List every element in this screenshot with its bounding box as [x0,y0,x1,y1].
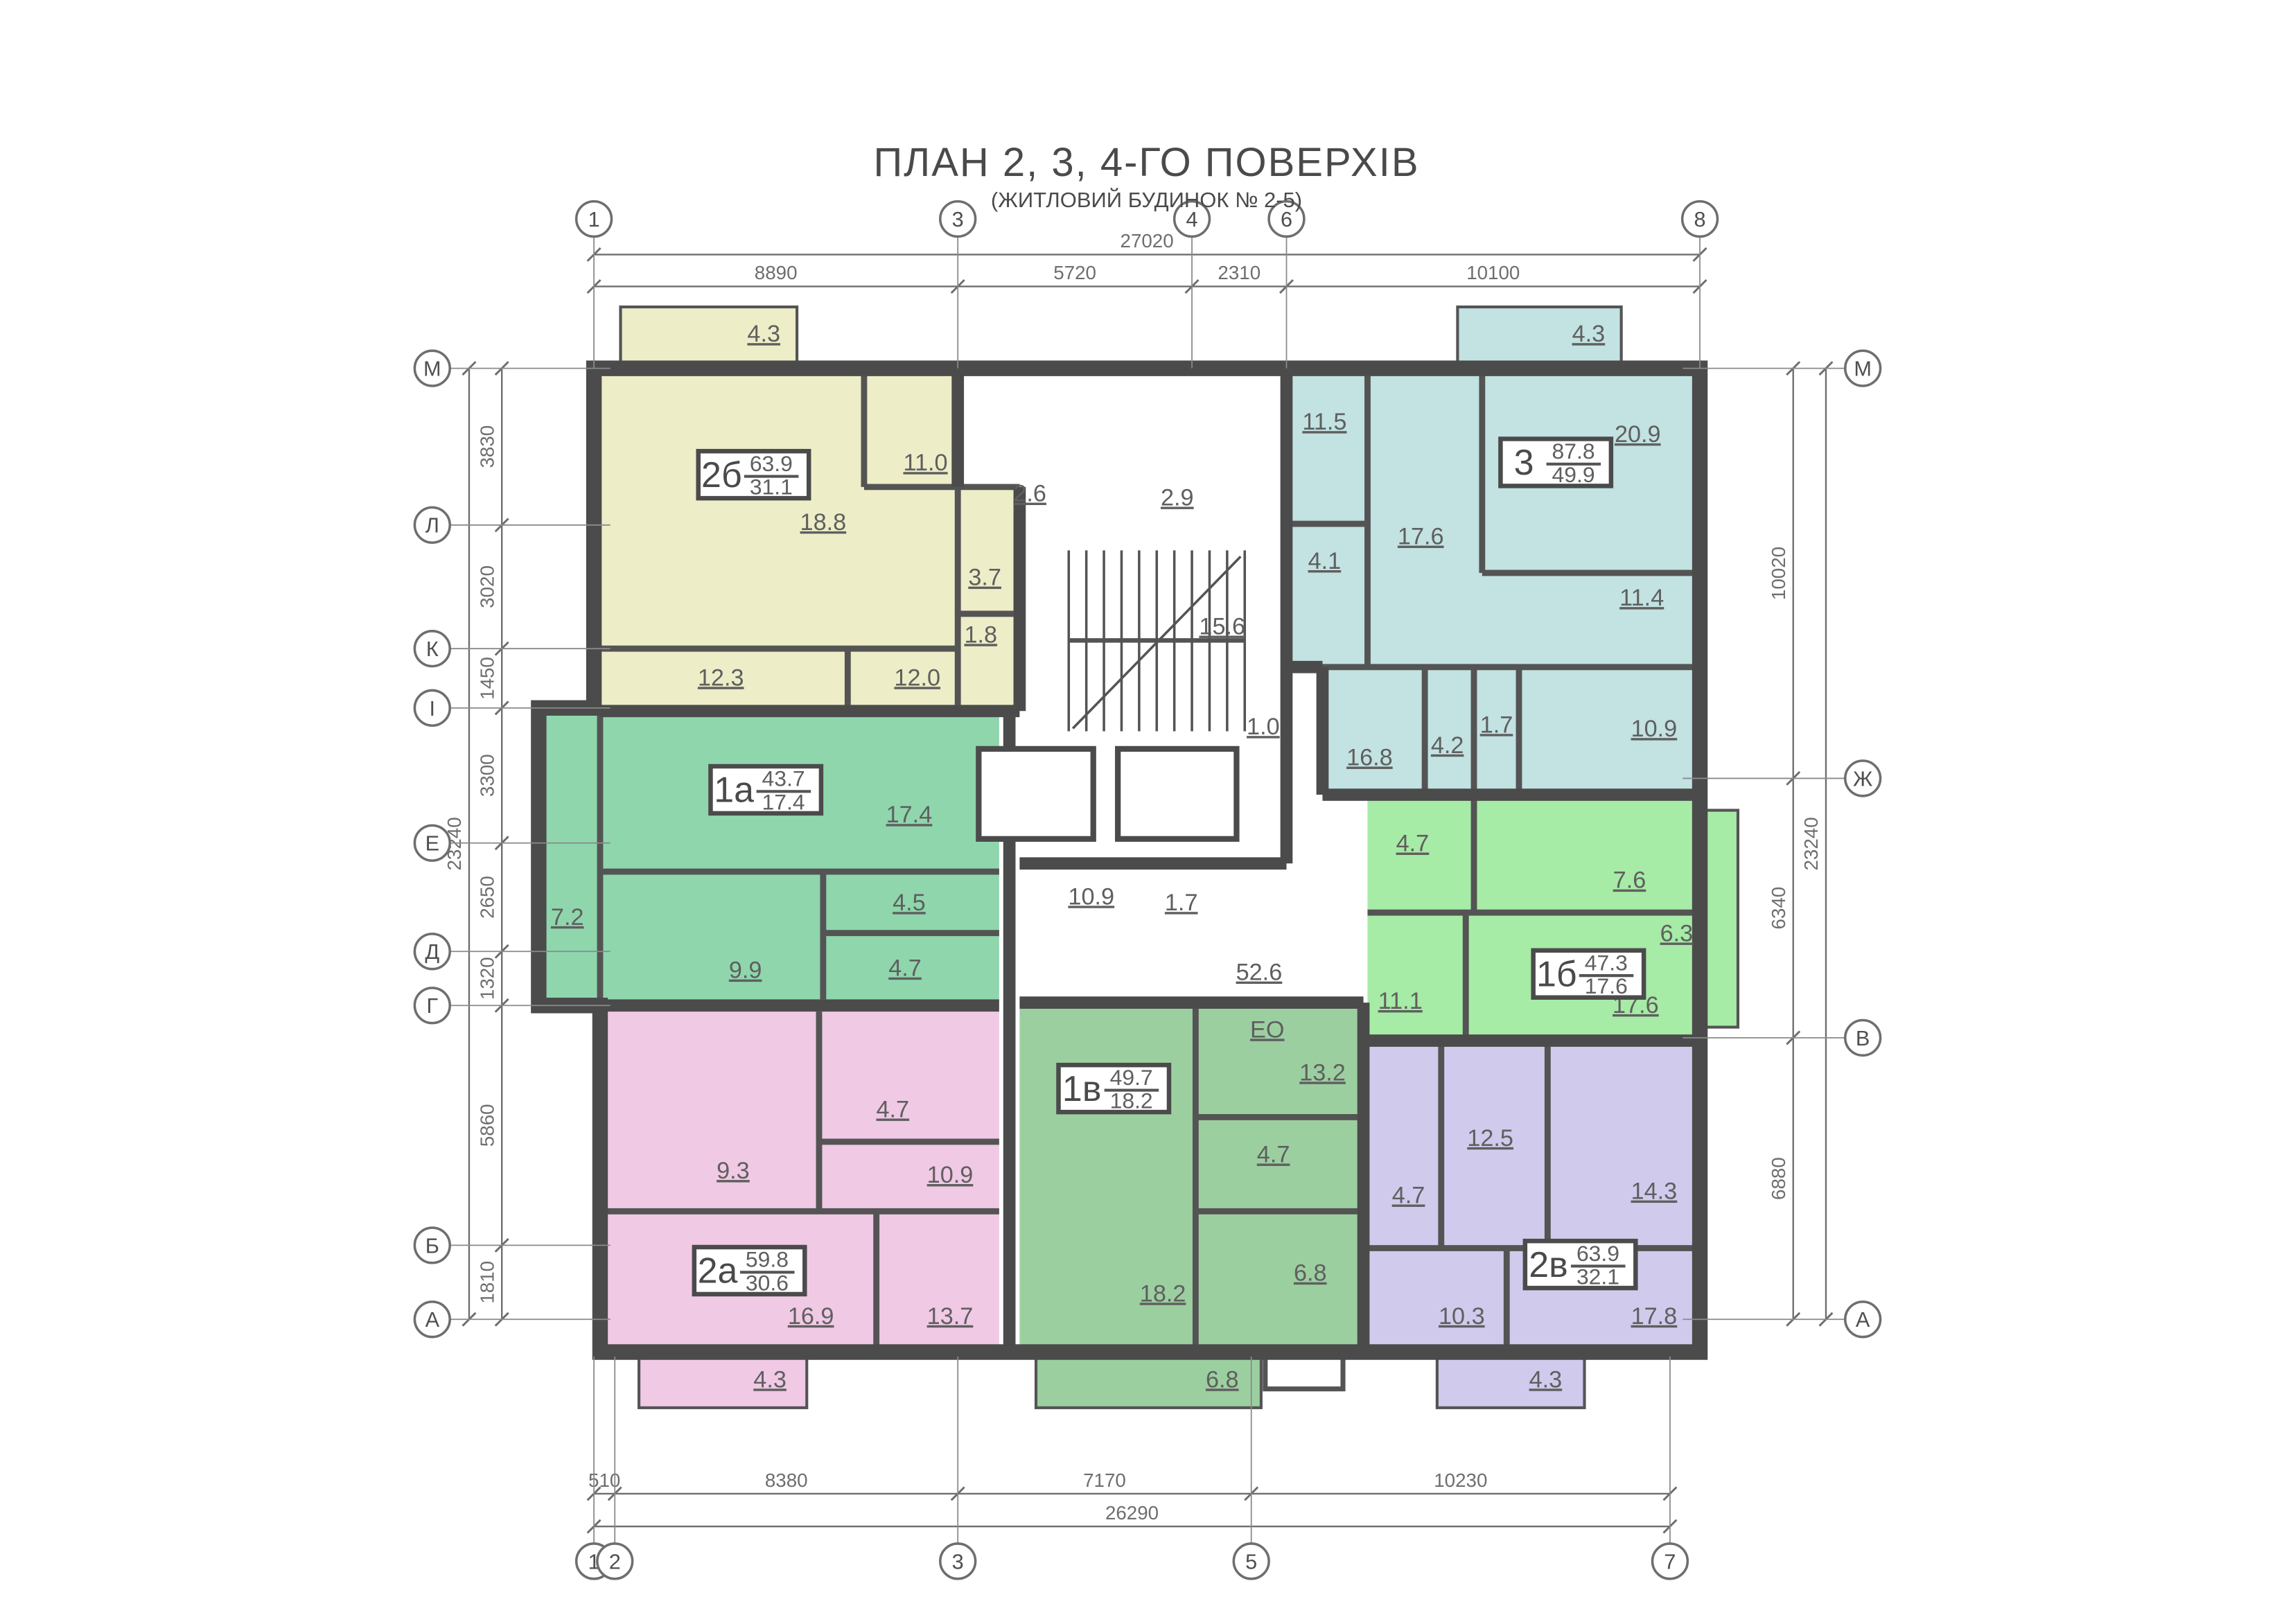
apartment-id-label: 1в [1062,1069,1102,1109]
balcony-area-label: 4.3 [1529,1366,1563,1393]
room-area-label: ЕО [1250,1016,1285,1043]
room-area-label: 17.6 [1398,524,1444,550]
apartment-id-label: 2а [698,1251,738,1291]
room-area-label: 13.7 [927,1303,974,1330]
room-area-label: 20.9 [1615,421,1661,448]
apartment-total-area: 87.8 [1552,439,1595,464]
apartment-living-area: 49.9 [1552,462,1595,487]
balcony-area-label: 4.3 [747,321,780,347]
elevator-shaft [978,749,1093,839]
dim-chain-value: 3300 [476,754,498,797]
apartment-id-label: 1а [714,770,754,811]
room-area-label: 13.2 [1299,1059,1346,1086]
common-area-label: 10.9 [1068,883,1114,910]
apartment-id-label: 3 [1514,443,1534,483]
apartment-living-area: 30.6 [746,1270,789,1295]
apartment-total-area: 59.8 [746,1247,789,1272]
room-area-label: 7.2 [551,904,584,930]
info-box-2v: 2в63.932.1 [1525,1241,1635,1289]
room-area-label: 1.7 [1480,712,1513,738]
room-area-label: 12.0 [894,664,940,691]
room-area-label: 11.4 [1619,585,1664,611]
apartment-id-label: 2б [701,455,742,495]
apartment-living-area: 31.1 [750,475,793,500]
room-area-label: 4.7 [876,1096,909,1122]
room-area-label: 16.9 [788,1303,834,1330]
balcony-area-label: 6.8 [1206,1366,1239,1393]
axis-bubble-label: 7 [1664,1549,1676,1573]
common-area-label: 1.0 [1247,714,1280,740]
balcony-area-label: 4.3 [753,1366,787,1393]
room-area-label: 9.9 [729,957,762,984]
room-area-label: 11.5 [1302,409,1346,435]
room-area-label: 1.8 [964,621,997,648]
common-area-label: 15.6 [1199,614,1245,640]
axis-bubble-label: І [430,696,436,721]
elevator-shaft [1118,749,1236,839]
room-area-label: 4.7 [888,955,922,982]
dim-chain-value: 2310 [1218,262,1260,283]
common-area-label: 52.6 [1236,960,1283,986]
dim-chain-value: 10100 [1466,262,1520,283]
page-subtitle: (ЖИТЛОВИЙ БУДИНОК № 2-5) [991,188,1302,213]
info-box-2a: 2а59.830.6 [694,1247,805,1296]
common-area-label: 1.7 [1165,890,1198,916]
dim-chain-value: 5720 [1053,262,1096,283]
axis-bubble-label: А [425,1307,440,1332]
axis-bubble-label: Е [425,831,439,856]
room-area-label: 10.9 [1631,716,1678,742]
apartment-living-area: 32.1 [1576,1264,1619,1289]
apartment-total-area: 63.9 [1576,1241,1619,1266]
axis-bubble-label: А [1856,1307,1870,1332]
apartment-total-area: 47.3 [1585,950,1628,975]
apartment-living-area: 17.4 [762,789,805,814]
info-box-2b: 2б63.931.1 [699,451,809,500]
axis-bubble-label: Б [425,1233,439,1257]
axis-bubble-label: 1 [588,207,600,231]
room-area-label: 4.1 [1308,548,1342,574]
info-box-1a: 1а43.717.4 [710,766,820,815]
apartment-living-area: 17.6 [1585,973,1628,998]
dim-chain-value: 2650 [476,876,498,919]
room-area-label: 6.3 [1660,921,1694,947]
dim-overall-value: 26290 [1105,1502,1159,1524]
room-area-label: 18.2 [1140,1280,1186,1307]
dim-chain-value: 6340 [1768,887,1789,930]
common-labels: 2.62.915.61.010.91.752.6 [1013,481,1282,986]
room-area-label: 16.8 [1346,745,1393,771]
dim-chain-value: 3830 [476,425,498,468]
axis-bubble-label: Ж [1853,766,1872,791]
room-area-label: 3.7 [968,565,1001,591]
apartment-region [538,714,999,1000]
axis-bubble-label: Л [425,513,439,538]
info-box-1v: 1в49.718.2 [1059,1065,1169,1113]
axis-bubble-label: М [423,357,441,381]
axis-bubble-label: 3 [952,207,964,231]
common-area-label: 2.6 [1013,481,1046,507]
apartment-region [1019,1003,1359,1352]
apartment-id-label: 2в [1529,1245,1568,1285]
room-area-label: 4.7 [1392,1183,1425,1209]
dim-chain-value: 10020 [1768,547,1789,600]
axis-bubble-label: 3 [952,1549,964,1573]
common-area-label: 2.9 [1161,484,1194,511]
info-box-3: 387.849.9 [1500,439,1610,487]
axis-bubble-label: В [1856,1026,1870,1050]
dim-chain-value: 1810 [476,1261,498,1304]
balcony-region [1437,1352,1585,1408]
dim-chain-value: 3020 [476,565,498,608]
apartment-living-area: 18.2 [1110,1088,1153,1113]
axis-bubble-label: 2 [609,1549,621,1573]
floor-plan-canvas: 18.811.03.71.812.312.04.311.54.117.620.9… [0,0,2293,1621]
dim-chain-value: 1450 [476,657,498,700]
dim-chain-value: 7170 [1083,1469,1126,1491]
apartment-id-label: 1б [1536,954,1577,994]
axis-bubble-label: 5 [1245,1549,1257,1573]
axis-bubble-label: Г [426,994,438,1018]
axis-bubble-label: К [426,637,439,661]
room-area-label: 17.4 [886,802,933,828]
room-area-label: 12.5 [1467,1125,1513,1151]
axis-bubble-label: 8 [1694,207,1706,231]
room-area-label: 17.8 [1631,1303,1678,1330]
room-area-label: 10.9 [927,1162,974,1188]
apartment-total-area: 63.9 [750,451,793,476]
room-area-label: 7.6 [1613,867,1646,894]
apartment-total-area: 49.7 [1110,1065,1153,1090]
axis-bubble-label: Д [425,939,439,964]
axis-bubble-label: М [1854,357,1872,381]
room-area-label: 18.8 [800,509,847,536]
dim-overall-value: 23240 [1800,817,1822,870]
page-title: ПЛАН 2, 3, 4-ГО ПОВЕРХІВ [873,139,1419,186]
room-area-label: 6.8 [1294,1260,1327,1287]
dim-chain-value: 6880 [1768,1157,1789,1200]
drawing-sheet: 18.811.03.71.812.312.04.311.54.117.620.9… [0,0,2293,1621]
room-area-label: 4.2 [1431,732,1464,759]
room-area-label: 11.0 [903,450,947,476]
room-area-label: 9.3 [717,1158,750,1184]
room-area-label: 12.3 [698,664,744,691]
floor-plan: 18.811.03.71.812.312.04.311.54.117.620.9… [0,0,2293,1621]
dim-chain-value: 5860 [476,1104,498,1147]
room-area-label: 10.3 [1439,1303,1485,1330]
room-area-label: 4.7 [1396,831,1430,857]
apartment-total-area: 43.7 [762,766,805,791]
dim-chain-value: 8380 [765,1469,808,1491]
dim-chain-value: 510 [588,1469,620,1491]
dim-chain-value: 10230 [1434,1469,1487,1491]
dim-overall-value: 27020 [1121,230,1174,251]
room-area-label: 4.5 [893,890,926,916]
balcony-area-label: 4.3 [1572,321,1606,347]
apartment-1a [538,714,999,1000]
room-area-label: 14.3 [1631,1179,1678,1205]
dim-chain-value: 8890 [755,262,798,283]
dim-chain-value: 1320 [476,957,498,1000]
room-area-label: 11.1 [1378,988,1423,1014]
info-box-1b: 1б47.317.6 [1534,950,1644,998]
room-area-label: 4.7 [1257,1141,1290,1167]
